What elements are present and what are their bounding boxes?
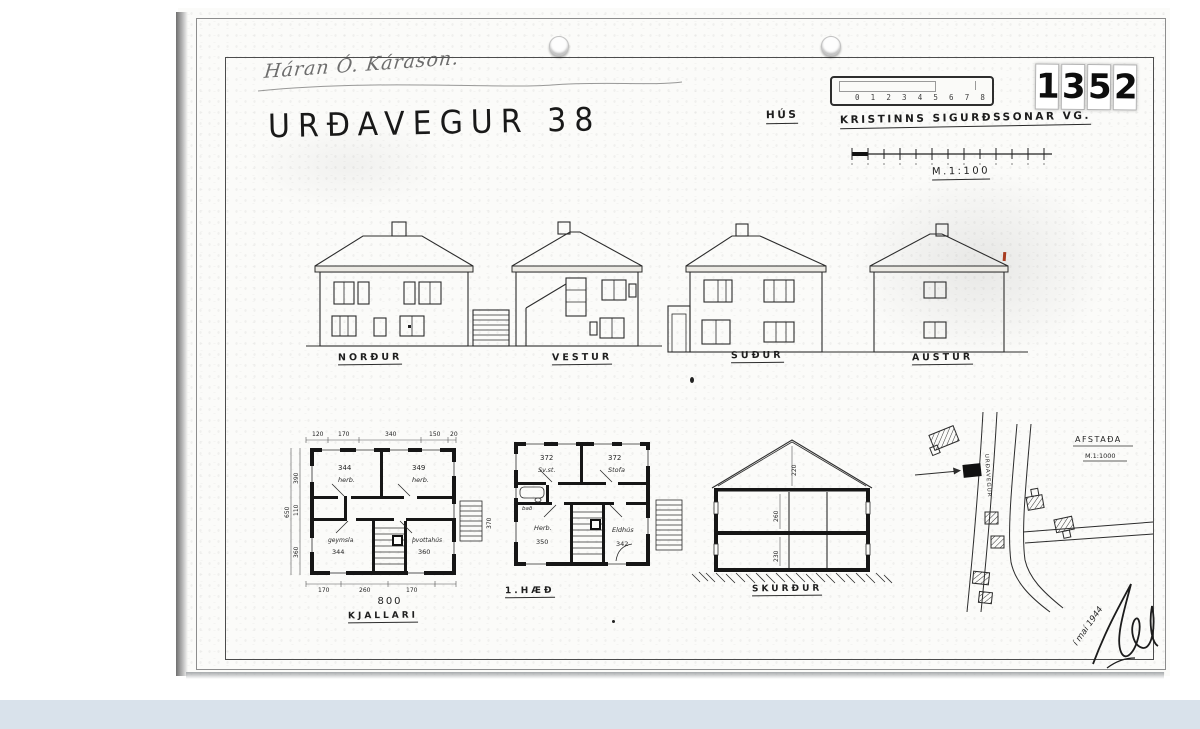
ruler-digit-row: 0 1 2 3 4 5 6 7 8 (855, 93, 985, 102)
svg-text:150: 150 (429, 431, 441, 438)
basement-dim-top: 120 170 340 150 20 (306, 431, 458, 443)
stamp-digit: 3 (1061, 64, 1085, 110)
svg-text:220: 220 (791, 464, 798, 476)
site-plan-scale: M.1:1000 (1085, 452, 1116, 460)
ink-speck (612, 620, 615, 623)
ruler-divider (975, 81, 976, 90)
room-number: 360 (418, 548, 430, 556)
elevation-west-label: VESTUR (552, 352, 612, 366)
room-number: 350 (536, 538, 548, 546)
svg-text:170: 170 (318, 587, 330, 594)
south-annex (668, 306, 690, 352)
handwritten-signature-flourish (1093, 584, 1158, 664)
site-subject-house (915, 463, 982, 478)
red-ink-mark (1003, 252, 1007, 261)
room-name: Stofa (608, 466, 625, 474)
room-name: þvottahús (411, 537, 442, 544)
ruler-digit: 4 (918, 93, 923, 102)
ruler-digit: 8 (980, 93, 985, 102)
svg-text:260: 260 (359, 587, 371, 594)
sheet-title-street-address: URÐAVEGUR 38 (268, 101, 602, 146)
scale-label-1-100: M.1:100 (932, 165, 990, 180)
svg-text:170: 170 (338, 431, 350, 438)
stamp-digit: 1 (1035, 63, 1059, 109)
elevation-south-drawing (668, 224, 878, 360)
room-number: 344 (332, 548, 344, 556)
elevation-east-drawing (856, 224, 1031, 360)
svg-text:390: 390 (293, 472, 300, 484)
stamp-digit: 5 (1087, 64, 1111, 110)
ruler-digit: 7 (965, 93, 970, 102)
room-name: Sv.st. (538, 466, 556, 474)
room-number: 344 (338, 464, 352, 472)
section-ground-hatch (692, 572, 892, 583)
svg-text:20: 20 (450, 431, 458, 438)
paper-edge-shadow-left (176, 12, 188, 676)
owner-label: HÚS (766, 109, 799, 125)
south-windows (702, 280, 794, 344)
ruler-digit: 5 (933, 93, 938, 102)
elevation-south-label: SUÐUR (731, 350, 784, 364)
basement-floor-plan: 120 170 340 150 20 390 110 360 650 170 2… (286, 426, 496, 596)
east-windows (924, 282, 946, 338)
elevation-west-drawing (500, 222, 665, 354)
floor1-bathroom (520, 487, 544, 502)
handwritten-underline-flourish (252, 78, 692, 98)
room-name: Herb. (534, 524, 552, 532)
section-drawing: 220 260 230 (692, 432, 892, 584)
punch-hole-left (549, 36, 569, 56)
archive-number-stamp: 1 3 5 2 (1035, 63, 1137, 110)
svg-text:340: 340 (385, 431, 397, 438)
room-name: bað (522, 506, 533, 512)
room-name: herb. (338, 476, 355, 484)
basement-exterior-stair: 370 (460, 501, 493, 541)
section-walls (714, 488, 870, 568)
ruler-digit: 2 (886, 93, 891, 102)
svg-text:120: 120 (312, 431, 324, 438)
paper-edge-shadow-bottom (186, 672, 1164, 679)
svg-text:230: 230 (773, 550, 780, 562)
first-floor-plan: 372 Sv.st. 372 Stofa bað Herb. 350 Eldhú… (498, 430, 688, 582)
svg-text:110: 110 (293, 504, 300, 516)
stamp-digit: 2 (1113, 64, 1137, 110)
site-street-name: URÐAVEGUR (983, 454, 992, 498)
room-name: herb. (412, 476, 429, 484)
west-stair-window (566, 278, 586, 316)
ruler-digit: 6 (949, 93, 954, 102)
room-number: 372 (540, 454, 553, 462)
floor1-exterior-stair (656, 500, 682, 550)
punch-hole-right (821, 36, 841, 56)
basement-dim-bottom: 170 260 170 (306, 581, 456, 594)
floor1-stair (573, 512, 602, 554)
scan-reference-ruler: 0 1 2 3 4 5 6 7 8 (830, 76, 994, 106)
west-porch (526, 284, 566, 346)
room-name: geymsla (328, 537, 354, 544)
ruler-digit: 3 (902, 93, 907, 102)
site-buildings (929, 426, 1074, 604)
room-name: Eldhús (612, 526, 634, 534)
ruler-digit: 0 (855, 93, 860, 102)
basement-plan-label: KJALLARI (348, 611, 418, 624)
first-floor-plan-label: 1.HÆÐ (505, 586, 555, 599)
svg-text:650: 650 (284, 506, 291, 518)
room-number: 372 (608, 454, 621, 462)
ruler-window (839, 81, 936, 92)
ruler-digit: 1 (871, 93, 876, 102)
north-windows (332, 282, 441, 336)
scanner-background-band (0, 700, 1200, 729)
svg-text:370: 370 (486, 517, 493, 529)
section-label: SKURÐUR (752, 584, 822, 597)
room-number: 342 (616, 540, 628, 548)
elevation-east-label: AUSTUR (912, 352, 973, 366)
svg-text:360: 360 (293, 546, 300, 558)
site-plan-title: AFSTAÐA (1075, 435, 1122, 444)
date-note: í maí 1944 (1071, 605, 1105, 648)
basement-stair (375, 528, 404, 564)
west-windows (590, 280, 636, 338)
svg-text:260: 260 (773, 510, 780, 522)
section-dimensions: 220 260 230 (773, 446, 798, 566)
elevation-north-label: NORÐUR (338, 352, 402, 366)
scanned-blueprint-sheet: Háran Ó. Kárason. URÐAVEGUR 38 0 1 2 3 4… (0, 0, 1200, 729)
svg-text:170: 170 (406, 587, 418, 594)
basement-total-width: 800 (325, 596, 455, 607)
ink-speck (690, 377, 694, 383)
basement-dim-left: 390 110 360 650 (284, 448, 300, 575)
room-number: 349 (412, 464, 425, 472)
signature-block: í maí 1944 (1055, 566, 1160, 674)
